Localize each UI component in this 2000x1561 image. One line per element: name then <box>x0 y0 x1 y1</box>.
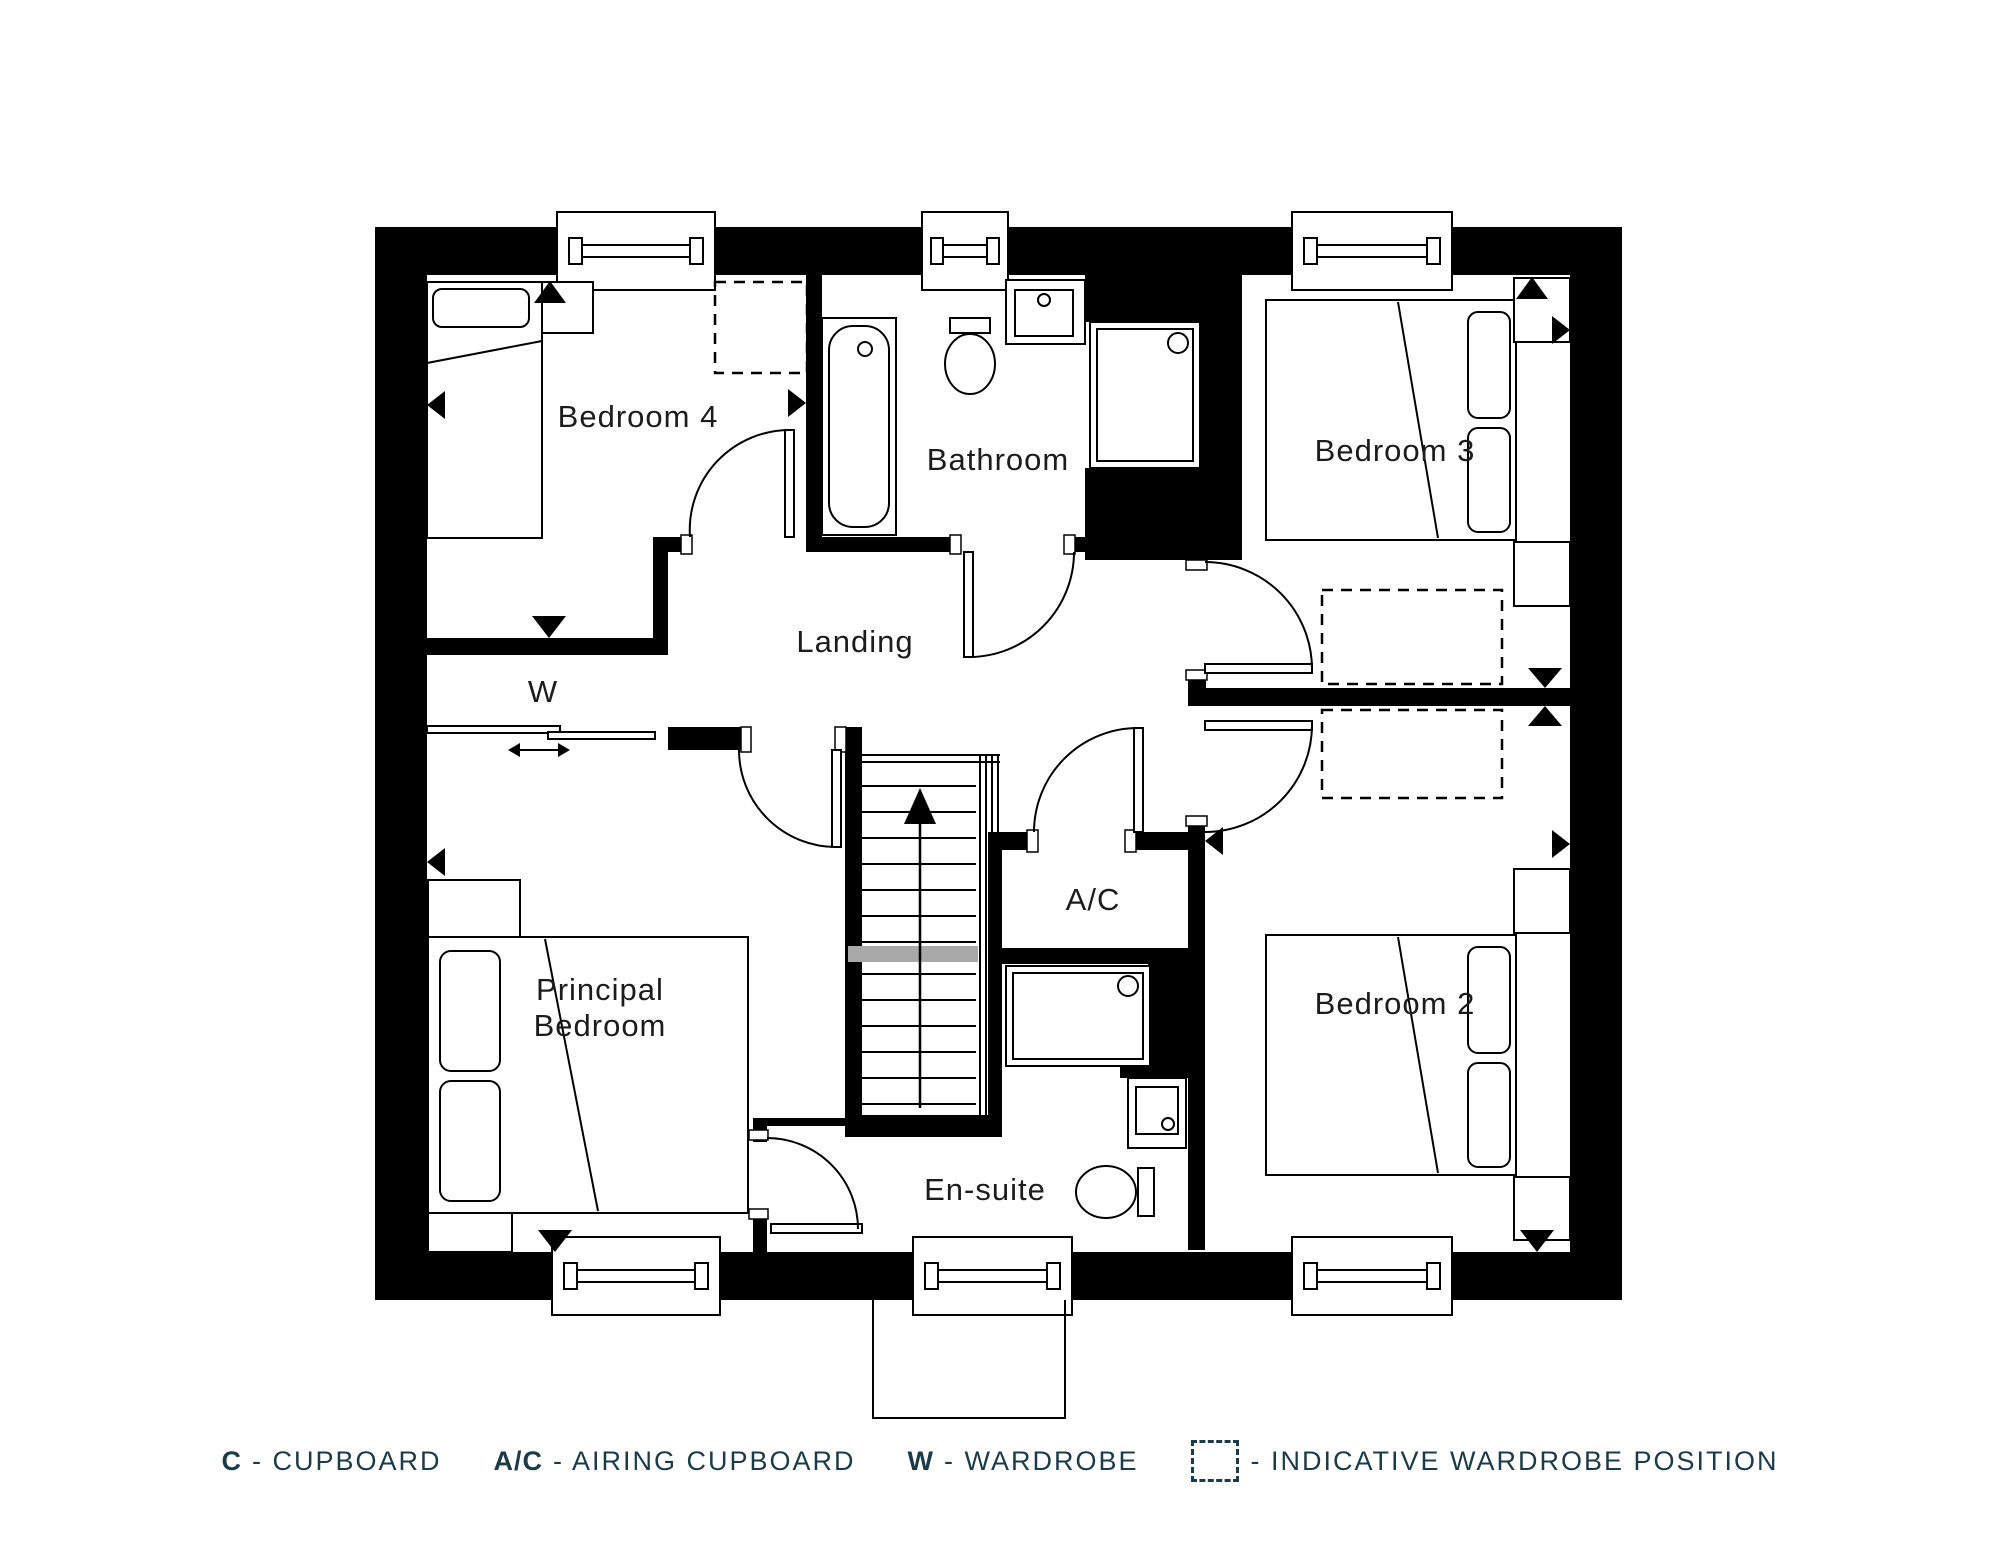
bedroom3-indicative-wardrobe <box>1322 590 1502 684</box>
bedroom2-indicative-wardrobe <box>1322 710 1502 798</box>
bedroom4-window <box>557 212 715 290</box>
bathroom-toilet <box>945 318 995 394</box>
wardrobe-sliding-doors <box>427 726 655 757</box>
bathroom-basin <box>1006 280 1085 344</box>
bathroom-label: Bathroom <box>927 442 1069 477</box>
legend-key: W <box>908 1446 934 1477</box>
wardrobe-label: W <box>528 674 558 709</box>
ensuite-shower <box>1006 966 1150 1066</box>
porch-outline <box>873 1300 1065 1418</box>
marker-up-icon <box>1528 706 1562 726</box>
bedroom4-indicative-wardrobe <box>715 282 807 373</box>
floorplan-canvas: Bedroom 4 Bathroom Bedroom 3 Landing W A… <box>0 0 2000 1561</box>
principal-bedroom-door <box>739 750 841 847</box>
legend-label: - WARDROBE <box>944 1446 1139 1477</box>
legend-item-indicative-wardrobe: - INDICATIVE WARDROBE POSITION <box>1191 1440 1779 1482</box>
legend-item-airing-cupboard: A/C - AIRING CUPBOARD <box>493 1446 855 1477</box>
stairs <box>848 755 1000 1115</box>
bedroom3-label: Bedroom 3 <box>1315 433 1476 468</box>
bedroom3-furniture <box>1266 278 1570 684</box>
bathroom-window <box>922 212 1008 290</box>
stair-cut-band <box>848 946 978 962</box>
marker-down-icon <box>532 616 566 638</box>
legend-item-cupboard: C - CUPBOARD <box>221 1446 441 1477</box>
bedroom3-door <box>1205 562 1312 673</box>
marker-left-icon <box>427 848 445 876</box>
bedroom4-pillow <box>433 289 529 327</box>
legend-label: - INDICATIVE WARDROBE POSITION <box>1251 1446 1779 1477</box>
principal-bedroom-label-line1: Principal <box>536 972 664 1007</box>
principal-bedroom-label-line2: Bedroom <box>534 1008 667 1043</box>
ensuite-door <box>767 1138 862 1233</box>
ensuite-basin <box>1128 1078 1186 1148</box>
bedroom2-label: Bedroom 2 <box>1315 986 1476 1021</box>
bedroom2-pillow <box>1468 1063 1510 1167</box>
ensuite-label: En-suite <box>924 1172 1046 1207</box>
principal-bedroom-window <box>552 1237 720 1315</box>
bedroom3-nightstand <box>1514 542 1570 606</box>
bedroom3-pillow <box>1468 312 1510 418</box>
bathroom-door <box>964 552 1074 657</box>
bedroom3-window <box>1292 212 1452 290</box>
bath <box>822 318 896 535</box>
airing-cupboard-door <box>1034 728 1143 832</box>
legend-key: C <box>221 1446 242 1477</box>
principal-pillow <box>440 1081 500 1201</box>
bedroom2-furniture <box>1266 710 1570 1240</box>
principal-bedroom-furniture <box>428 880 748 1252</box>
marker-right-icon <box>1552 830 1570 858</box>
slide-direction-icon <box>508 743 570 757</box>
legend-label: - AIRING CUPBOARD <box>553 1446 856 1477</box>
legend: C - CUPBOARD A/C - AIRING CUPBOARD W - W… <box>0 1440 2000 1482</box>
bedroom2-nightstand <box>1514 869 1570 933</box>
marker-down-icon <box>1528 668 1562 688</box>
bedroom2-window <box>1292 1237 1452 1315</box>
legend-label: - CUPBOARD <box>252 1446 442 1477</box>
bedroom4-label: Bedroom 4 <box>558 399 719 434</box>
bedroom2-door <box>1205 721 1312 832</box>
ensuite-window <box>913 1237 1072 1315</box>
principal-nightstand <box>428 880 520 937</box>
legend-key: A/C <box>493 1446 543 1477</box>
bathroom-shower <box>1090 322 1200 468</box>
marker-right-icon <box>788 389 806 417</box>
airing-cupboard-label: A/C <box>1066 882 1121 917</box>
dashed-box-icon <box>1191 1440 1239 1482</box>
legend-item-wardrobe: W - WARDROBE <box>908 1446 1139 1477</box>
principal-pillow <box>440 951 500 1071</box>
bedroom4-door <box>690 430 794 537</box>
principal-nightstand <box>428 1213 512 1252</box>
ensuite-toilet <box>1076 1166 1154 1218</box>
landing-label: Landing <box>796 624 913 659</box>
floorplan-svg: Bedroom 4 Bathroom Bedroom 3 Landing W A… <box>0 0 2000 1561</box>
